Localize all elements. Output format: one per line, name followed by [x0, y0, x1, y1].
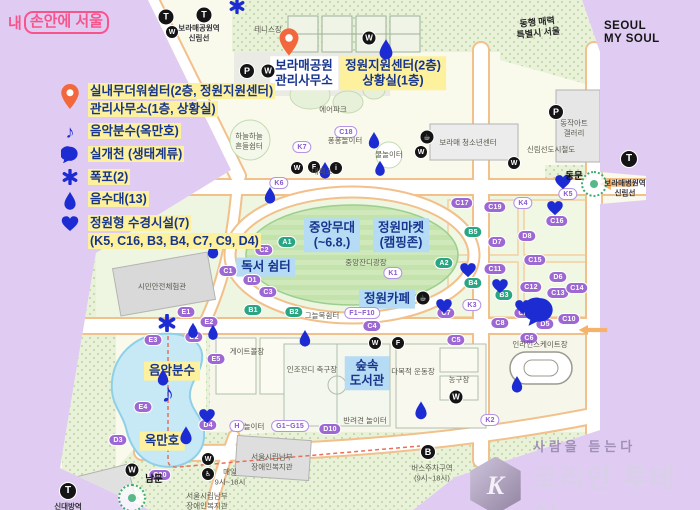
callout-garden-center: 정원지원센터(2층) 상황실(1층) — [340, 56, 446, 90]
bubble-icon — [56, 145, 84, 164]
marker-C11: C11 — [483, 263, 506, 275]
legend-line: 정원형 수경시설(7) — [88, 215, 191, 231]
toilet-icon: W — [201, 452, 215, 466]
callout-garden-market: 정원마켓 (캠핑존) — [373, 218, 429, 252]
marker-E3: E3 — [144, 334, 163, 346]
map-label-138: 남문 — [145, 474, 162, 486]
legend-line: 실내무더워쉼터(2층, 정원지원센터) — [88, 83, 275, 99]
marker-C10: C10 — [557, 313, 580, 325]
map-label-114: 에어파크 — [319, 105, 347, 115]
marker-D6: D6 — [548, 271, 567, 283]
callout-park-office: 보라매공원 관리사무소 — [270, 56, 338, 90]
wheelchair-icon: ♿ — [201, 467, 215, 481]
my-seoul-boxed-text: 손안에 서울 — [24, 11, 109, 34]
marker-C8: C8 — [490, 317, 509, 329]
map-label-119: 보라매 청소년센터 — [439, 138, 496, 148]
drop-icon — [378, 38, 394, 60]
map-label-135: 서울시립남부 장애인복지관 — [251, 452, 292, 472]
seoul-logo-line2: MY SOUL — [604, 33, 660, 46]
watermark-tagline: 사람을 듣는다 — [533, 436, 700, 455]
arrow-icon — [578, 325, 608, 335]
marker-K3: K3 — [462, 299, 481, 311]
map-label-117: 물놀이터 — [375, 150, 403, 160]
heart-icon — [199, 408, 216, 424]
map-label-137: 신대방역 — [54, 502, 82, 510]
asterisk-icon — [158, 314, 176, 332]
legend-item-stream: 실개천 (생태계류) — [56, 145, 275, 164]
map-label-124: 중앙잔디광장 — [345, 258, 386, 268]
map-label-120: 신림선도시철도 — [527, 145, 575, 155]
drop-icon — [511, 375, 524, 393]
legend-item-shelter: 실내무더워쉼터(2층, 정원지원센터)관리사무소(1층, 상황실) — [56, 82, 275, 118]
marker-K7: K7 — [292, 141, 311, 153]
map-label-132: 놀이터 — [244, 422, 265, 432]
subway-icon: T — [158, 9, 175, 26]
my-seoul-logo: 내 손안에 서울 — [8, 11, 109, 34]
korean-today-k-logo: K — [468, 457, 523, 510]
map-label-134: 버스주차구역 (9시~18시) — [411, 463, 452, 483]
boramae-park-map-image: 보라매공원 관리사무소정원지원센터(2층) 상황실(1층)중앙무대 (~6.8.… — [0, 0, 700, 510]
marker-C3: C3 — [258, 286, 277, 298]
toilet-icon: W — [125, 463, 140, 478]
bubble-icon — [525, 297, 555, 327]
rotary-ring — [118, 484, 146, 510]
drop-icon — [414, 401, 428, 420]
coffee-icon: ☕ — [416, 291, 431, 306]
coffee-icon: ☕ — [420, 130, 435, 145]
callout-forest-library: 숲속 도서관 — [345, 356, 390, 390]
legend-text-garden-water: 정원형 수경시설(7)(K5, C16, B3, B4, C7, C9, D4) — [88, 214, 261, 250]
drop-icon — [56, 190, 84, 210]
marker-B4: B4 — [463, 277, 482, 289]
map-label-125: 그늘목쉼터 — [305, 311, 340, 321]
marker-D7: D7 — [487, 236, 506, 248]
marker-K2: K2 — [480, 414, 499, 426]
map-label-128: 다목적 운동장 — [391, 367, 434, 377]
marker-B2: B2 — [284, 306, 303, 318]
legend-line: 관리사무소(1층, 상황실) — [88, 101, 218, 117]
heart-icon — [56, 214, 84, 232]
marker-A2: A2 — [434, 257, 453, 269]
seoul-my-soul-logo: SEOUL MY SOUL — [604, 20, 660, 45]
drop-icon — [374, 160, 386, 176]
legend-line: 폭포(2) — [88, 169, 130, 185]
legend-text-drinking: 음수대(13) — [88, 190, 149, 208]
watermark-name: 코리안 투데이 — [533, 457, 700, 510]
marker-E5: E5 — [207, 353, 226, 365]
map-label-133: 매일 9시~18시 — [215, 467, 246, 487]
map-label-129: 농구장 — [449, 375, 470, 385]
drop-icon — [368, 131, 381, 149]
pin-icon — [56, 82, 84, 110]
seoul-slogan-logo: 동행 매력 특별시 서울 — [515, 15, 561, 42]
callout-okmanho: 옥만호 — [140, 432, 185, 451]
asterisk-icon — [229, 0, 245, 14]
subway-icon: T — [196, 7, 213, 24]
map-label-116: 퐁퐁놀이터 — [328, 136, 363, 146]
legend-item-drinking: 음수대(13) — [56, 190, 275, 210]
marker-C4: C4 — [362, 320, 381, 332]
map-legend: 실내무더워쉼터(2층, 정원지원센터)관리사무소(1층, 상황실)♪음악분수(옥… — [56, 82, 275, 250]
map-label-136: 서울시립남부 장애인복지관 — [186, 491, 227, 510]
callout-main-stage: 중앙무대 (~6.8.) — [304, 218, 360, 252]
marker-A1: A1 — [277, 236, 296, 248]
heart-icon — [460, 262, 477, 278]
marker-C17: C17 — [450, 197, 473, 209]
callout-garden-cafe: 정원카페 — [359, 290, 415, 309]
map-label-121: 동작아트 갤러리 — [560, 118, 588, 138]
heart-icon — [436, 298, 453, 314]
korean-today-watermark: K 사람을 듣는다 코리안 투데이 — [468, 436, 700, 510]
drop-icon — [179, 426, 193, 445]
legend-text-shelter: 실내무더워쉼터(2층, 정원지원센터)관리사무소(1층, 상황실) — [88, 82, 275, 118]
marker-D10: D10 — [318, 423, 341, 435]
parking-icon: P — [239, 63, 255, 79]
marker-B1: B1 — [243, 304, 262, 316]
drop-icon — [299, 329, 312, 347]
toilet-icon: W — [261, 64, 276, 79]
toilet-icon: W — [165, 25, 179, 39]
legend-text-waterfall: 폭포(2) — [88, 168, 130, 186]
marker-D1: D1 — [242, 274, 261, 286]
legend-text-fountain: 음악분수(옥만호) — [88, 122, 181, 140]
map-label-113: 테니스장 — [254, 25, 282, 35]
heart-icon — [547, 200, 564, 216]
drop-icon — [207, 324, 219, 340]
marker-C14: C14 — [565, 282, 588, 294]
my-seoul-prefix: 내 — [8, 12, 22, 33]
toilet-icon: W — [507, 156, 521, 170]
subway-icon: T — [620, 150, 638, 168]
marker-C12: C12 — [519, 281, 542, 293]
marker-D8: D8 — [517, 230, 536, 242]
marker-C1: C1 — [218, 265, 237, 277]
rotary-ring — [581, 171, 607, 197]
map-label-131: 반려견 놀이터 — [343, 416, 386, 426]
legend-item-fountain: ♪음악분수(옥만호) — [56, 122, 275, 141]
toilet-icon: W — [290, 161, 304, 175]
heart-icon — [492, 278, 509, 294]
toilet-icon: W — [414, 145, 428, 159]
legend-line: 음수대(13) — [88, 191, 149, 207]
k-mark: K — [487, 471, 504, 501]
marker-B5: B5 — [463, 226, 482, 238]
toilet-icon: W — [368, 336, 382, 350]
map-label-127: 인조잔디 축구장 — [287, 365, 337, 375]
bus-icon: B — [420, 444, 436, 460]
legend-line: (K5, C16, B3, B4, C7, C9, D4) — [88, 233, 261, 249]
marker-G1~G15: G1~G15 — [271, 420, 309, 432]
food-icon: F — [391, 336, 405, 350]
map-label-122: 보라매병원역 신림선 — [604, 178, 645, 198]
toilet-icon: W — [449, 390, 464, 405]
note-icon: ♪ — [56, 122, 84, 141]
marker-H: H — [229, 420, 244, 432]
marker-C19: C19 — [483, 201, 506, 213]
subway-icon: T — [59, 482, 77, 500]
drop-icon — [187, 322, 199, 338]
legend-item-waterfall: 폭포(2) — [56, 168, 275, 186]
toilet-icon: W — [362, 31, 377, 46]
marker-D3: D3 — [108, 434, 127, 446]
marker-K1: K1 — [383, 267, 402, 279]
marker-E1: E1 — [177, 306, 196, 318]
seoul-logo-line1: SEOUL — [604, 20, 660, 33]
map-label-139: 동문 — [565, 171, 582, 183]
marker-C15: C15 — [523, 254, 546, 266]
map-label-126: 게이트볼장 — [230, 347, 265, 357]
map-label-112: 보라매공원역 신림선 — [178, 23, 219, 43]
marker-K4: K4 — [513, 197, 532, 209]
marker-C16: C16 — [545, 215, 568, 227]
map-label-118: 대피소 — [312, 167, 333, 177]
legend-item-garden-water: 정원형 수경시설(7)(K5, C16, B3, B4, C7, C9, D4) — [56, 214, 275, 250]
legend-text-stream: 실개천 (생태계류) — [88, 145, 184, 163]
map-label-130: 인라인스케이트장 — [512, 340, 567, 350]
legend-line: 음악분수(옥만호) — [88, 123, 181, 139]
marker-F1~F10: F1~F10 — [344, 307, 380, 319]
asterisk-icon — [56, 168, 84, 185]
note-icon: ♪ — [162, 380, 175, 406]
map-annotations-layer: 보라매공원 관리사무소정원지원센터(2층) 상황실(1층)중앙무대 (~6.8.… — [0, 0, 700, 510]
map-label-123: 시민안전체험관 — [138, 282, 186, 292]
legend-line: 실개천 (생태계류) — [88, 146, 184, 162]
marker-E4: E4 — [134, 401, 153, 413]
marker-C5: C5 — [446, 334, 465, 346]
